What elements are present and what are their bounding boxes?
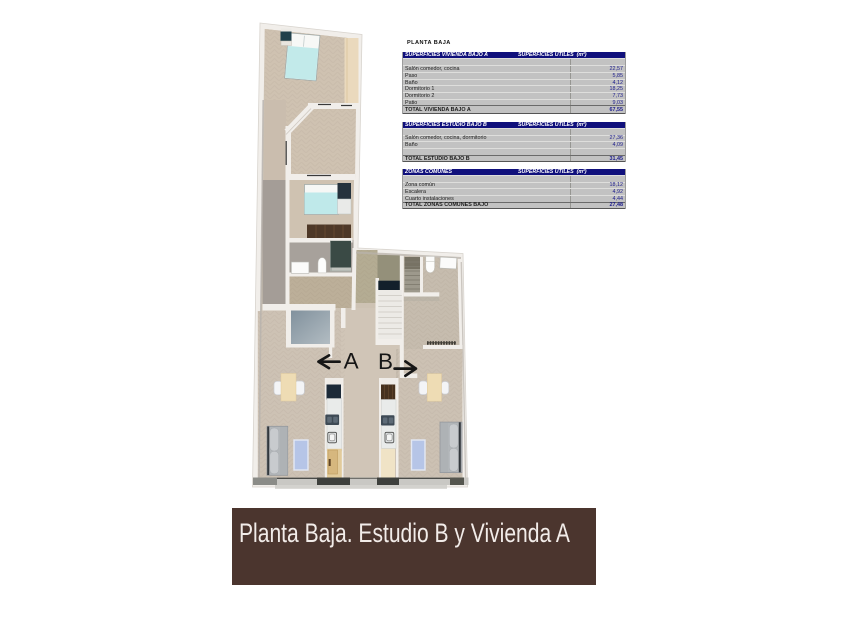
- svg-text:A: A: [344, 349, 359, 374]
- svg-text:B: B: [378, 349, 393, 374]
